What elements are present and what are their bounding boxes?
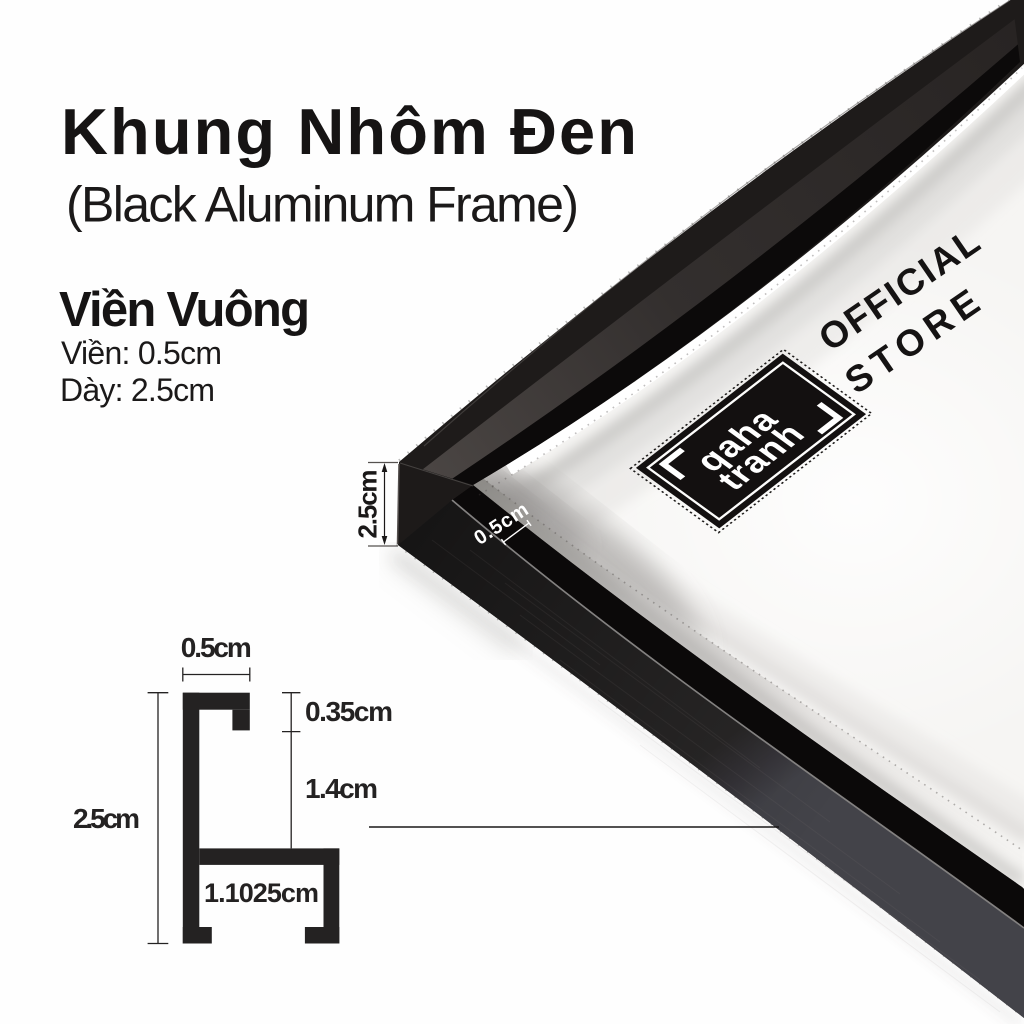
svg-text:0.35cm: 0.35cm [305, 696, 393, 727]
svg-text:0.5cm: 0.5cm [181, 632, 252, 663]
svg-text:Khung Nhôm Đen: Khung Nhôm Đen [61, 95, 637, 168]
svg-text:2.5cm: 2.5cm [73, 803, 140, 834]
svg-text:Dày: 2.5cm: Dày: 2.5cm [60, 372, 215, 408]
svg-text:Viền Vuông: Viền Vuông [59, 283, 310, 337]
svg-text:2.5cm: 2.5cm [353, 470, 383, 539]
svg-text:(Black Aluminum Frame): (Black Aluminum Frame) [66, 177, 579, 233]
svg-text:1.1025cm: 1.1025cm [204, 878, 319, 908]
svg-text:Viền: 0.5cm: Viền: 0.5cm [61, 335, 222, 371]
svg-text:1.4cm: 1.4cm [305, 773, 378, 804]
